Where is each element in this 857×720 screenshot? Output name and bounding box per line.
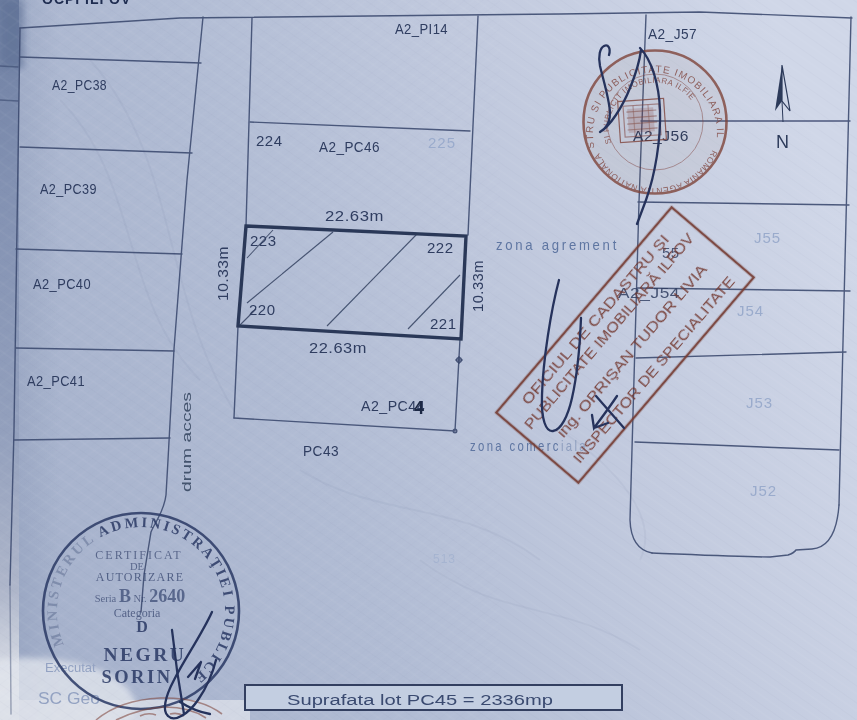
svg-text:223: 223 [250,232,277,249]
svg-text:224: 224 [256,132,283,149]
svg-text:N: N [776,132,789,152]
svg-text:221: 221 [430,315,457,332]
svg-text:10.33m: 10.33m [214,246,231,301]
svg-text:J52: J52 [750,482,777,499]
svg-text:A2_PC40: A2_PC40 [33,275,91,292]
svg-text:J55: J55 [754,229,781,246]
svg-text:J54: J54 [737,302,764,319]
svg-text:A2_PC39: A2_PC39 [40,180,97,197]
svg-text:A2_J57: A2_J57 [648,25,697,42]
svg-text:A2_PI14: A2_PI14 [395,20,448,37]
svg-text:OCPI ILFOV: OCPI ILFOV [42,0,131,7]
svg-text:zona agrement: zona agrement [496,237,619,253]
svg-text:222: 222 [427,239,454,256]
svg-text:225: 225 [428,134,456,151]
svg-text:10.33m: 10.33m [469,260,486,312]
svg-text:A2_PC46: A2_PC46 [319,138,380,155]
svg-text:PC43: PC43 [303,442,339,459]
svg-text:A2_PC41: A2_PC41 [27,372,85,389]
svg-text:J53: J53 [746,394,773,411]
svg-text:SORIN: SORIN [101,667,172,687]
svg-text:Executat: Executat [45,660,96,675]
svg-text:22.63m: 22.63m [309,339,367,356]
svg-text:SC Geo: SC Geo [38,690,100,707]
svg-text:drum acces: drum acces [179,392,194,492]
svg-text:Suprafata lot PC45 = 2336mp: Suprafata lot PC45 = 2336mp [287,691,553,708]
svg-text:4: 4 [414,398,424,418]
svg-text:CERTIFICAT: CERTIFICAT [95,548,182,562]
svg-text:22.63m: 22.63m [325,207,384,224]
svg-text:D: D [136,618,148,635]
svg-text:A2_PC38: A2_PC38 [52,76,107,93]
svg-text:AUTORIZARE: AUTORIZARE [96,570,184,584]
svg-text:513: 513 [433,552,456,566]
svg-text:220: 220 [249,301,276,318]
